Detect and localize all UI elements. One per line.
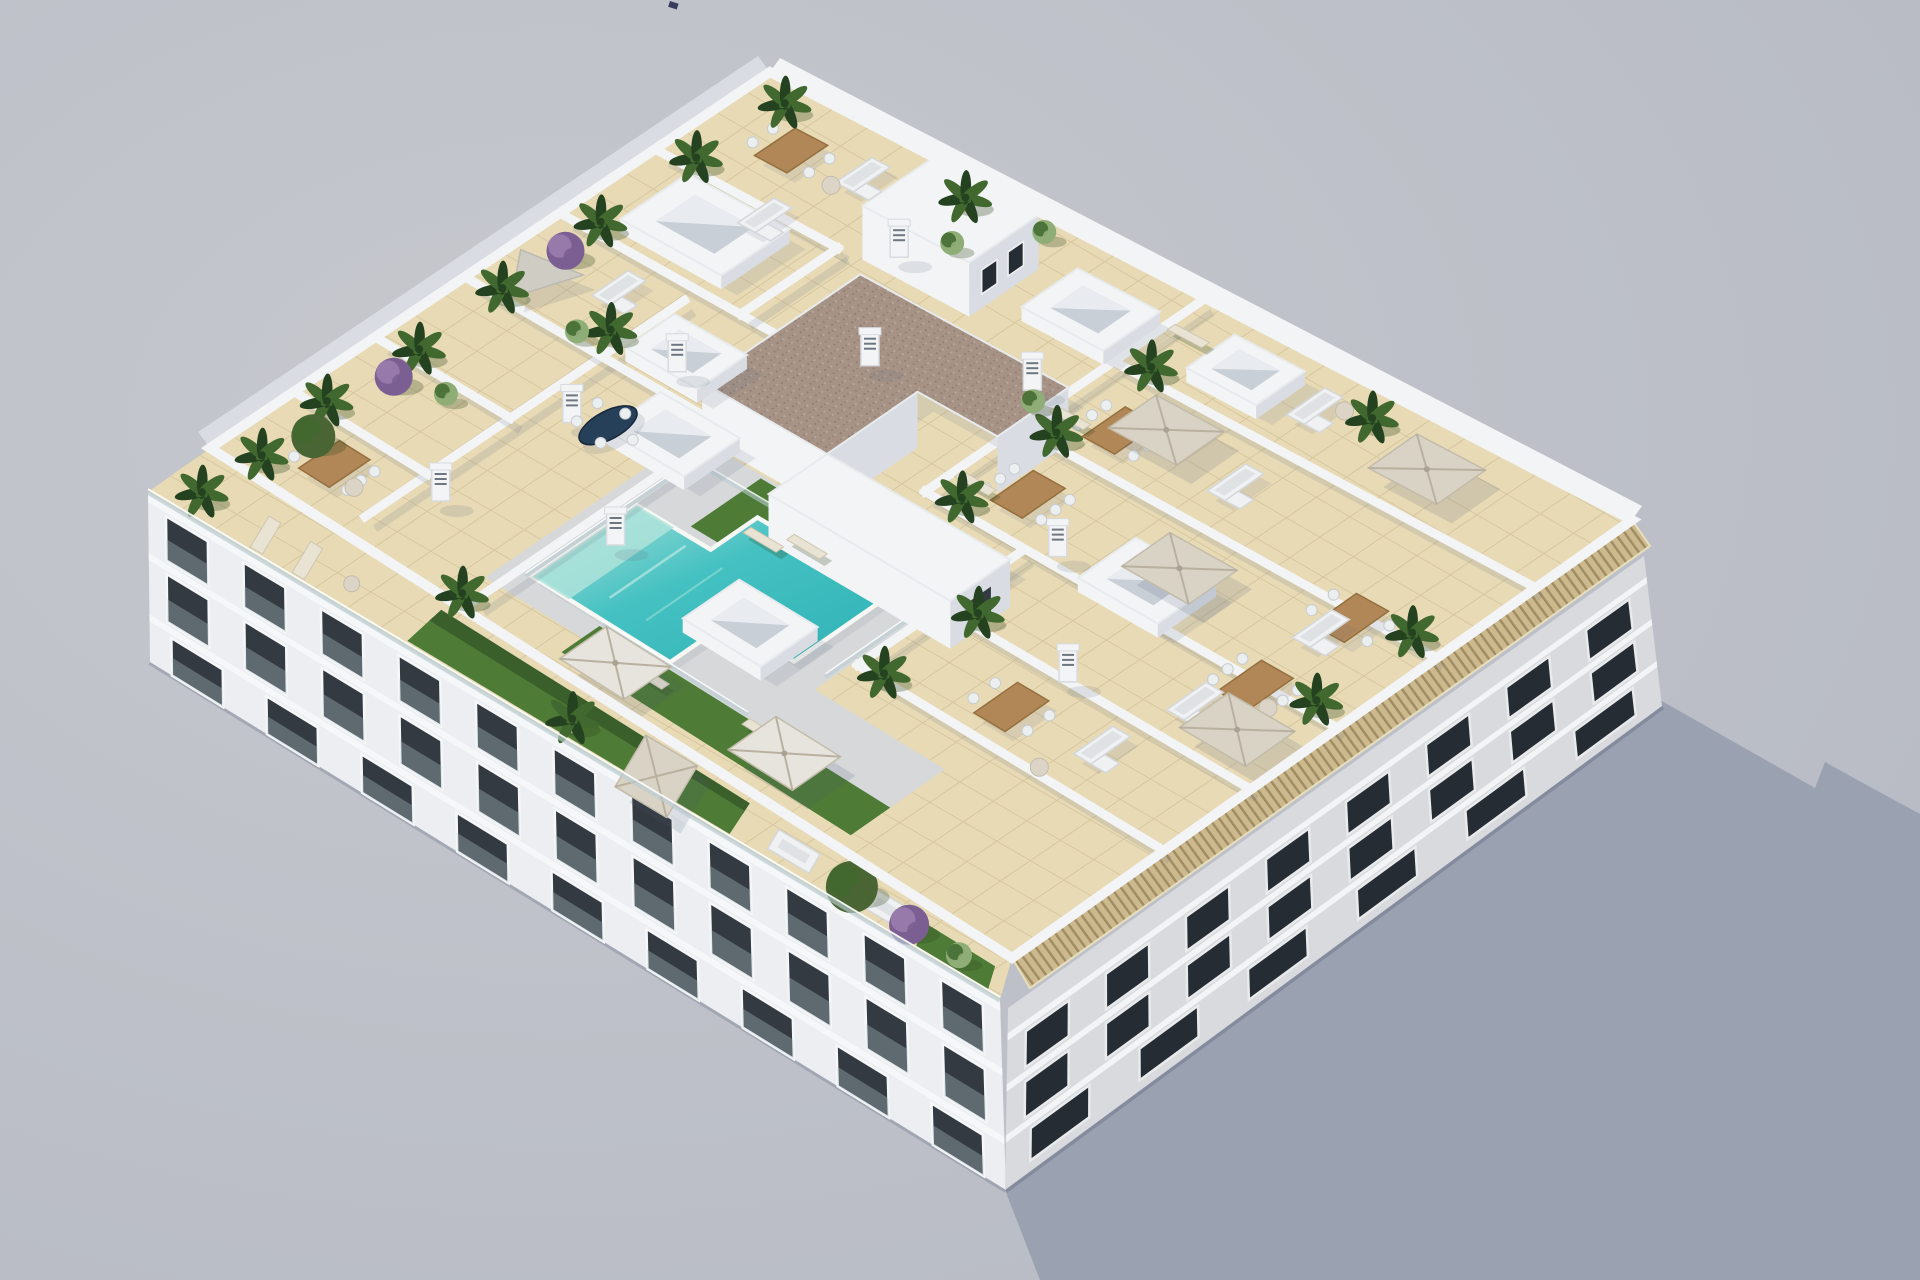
dining-chair bbox=[1050, 504, 1061, 515]
chimney-cap bbox=[561, 384, 583, 391]
dining-chair bbox=[1009, 463, 1020, 474]
chimney-cap bbox=[1047, 519, 1069, 526]
palm-crown bbox=[1368, 414, 1376, 422]
palm-crown bbox=[597, 218, 605, 226]
rooftop-aerial-render bbox=[0, 0, 1920, 1280]
olive-tree-foliage bbox=[849, 883, 872, 906]
parasol-hub bbox=[1176, 565, 1182, 571]
dining-chair bbox=[289, 451, 300, 462]
palm-crown bbox=[323, 397, 331, 405]
bougainvillea-bush-foliage bbox=[392, 374, 409, 391]
palm-crown bbox=[1147, 363, 1155, 371]
chimney-shadow bbox=[615, 549, 649, 561]
parasol-hub bbox=[612, 660, 618, 666]
palm-crown bbox=[974, 609, 982, 617]
palm-crown bbox=[458, 589, 466, 597]
side-table bbox=[344, 576, 360, 592]
dining-chair bbox=[1222, 664, 1233, 675]
palm-crown bbox=[415, 345, 423, 353]
dining-chair bbox=[627, 434, 638, 445]
dining-chair bbox=[620, 408, 631, 419]
chimney-shadow bbox=[1067, 686, 1101, 698]
chimney-shadow bbox=[869, 370, 903, 382]
dining-chair bbox=[824, 153, 835, 164]
dining-chair bbox=[1036, 514, 1047, 525]
palm-crown bbox=[568, 715, 576, 723]
dining-chair bbox=[1208, 674, 1219, 685]
parasol-hub bbox=[1234, 727, 1240, 733]
dining-chair bbox=[595, 437, 606, 448]
bougainvillea-bush-foliage bbox=[564, 248, 581, 265]
chimney-shadow bbox=[898, 261, 932, 273]
green-bush-foliage bbox=[951, 241, 962, 252]
palm-crown bbox=[781, 99, 789, 107]
palm-crown bbox=[607, 325, 615, 333]
parasol-hub bbox=[1163, 427, 1169, 433]
architectural-render-figure bbox=[0, 0, 1920, 1280]
chimney-cap bbox=[605, 507, 627, 514]
palm-crown bbox=[880, 669, 888, 677]
chimney-cap bbox=[430, 463, 452, 470]
green-bush-foliage bbox=[958, 953, 970, 965]
green-bush-foliage bbox=[1032, 399, 1043, 410]
dining-chair bbox=[1044, 710, 1055, 721]
dining-chair bbox=[995, 473, 1006, 484]
olive-tree-foliage bbox=[311, 433, 331, 453]
chimney-shadow bbox=[440, 505, 474, 517]
dining-chair bbox=[747, 137, 758, 148]
parasol-hub bbox=[1424, 466, 1430, 472]
dining-chair bbox=[1237, 653, 1248, 664]
dining-chair bbox=[1064, 494, 1075, 505]
dining-chair bbox=[1306, 605, 1317, 616]
palm-crown bbox=[498, 284, 506, 292]
palm-crown bbox=[258, 451, 266, 459]
chimney-cap bbox=[1021, 352, 1043, 359]
green-bush-foliage bbox=[1043, 230, 1054, 241]
palm-crown bbox=[1312, 696, 1320, 704]
dining-chair bbox=[990, 678, 1001, 689]
palm-crown bbox=[198, 488, 206, 496]
palm-crown bbox=[692, 154, 700, 162]
chimney-shadow bbox=[1057, 561, 1091, 573]
palm-crown bbox=[1052, 428, 1060, 436]
dining-chair bbox=[804, 167, 815, 178]
round-side-table bbox=[822, 176, 840, 194]
bougainvillea-bush-foliage bbox=[907, 922, 925, 940]
palm-crown bbox=[958, 494, 966, 502]
chimney-cap bbox=[888, 219, 910, 226]
chimney-cap bbox=[666, 334, 688, 341]
dining-chair bbox=[1277, 695, 1288, 706]
chimney-shadow bbox=[676, 376, 710, 388]
dining-chair bbox=[1022, 725, 1033, 736]
dining-chair bbox=[1328, 589, 1339, 600]
round-side-table bbox=[345, 478, 363, 496]
palm-crown bbox=[1408, 629, 1416, 637]
round-side-table bbox=[1030, 758, 1048, 776]
palm-crown bbox=[961, 194, 969, 202]
dining-chair bbox=[1362, 636, 1373, 647]
dining-chair bbox=[968, 693, 979, 704]
dining-chair bbox=[1087, 410, 1098, 421]
dining-chair bbox=[1101, 400, 1112, 411]
chimney-cap bbox=[1057, 644, 1079, 651]
round-side-table bbox=[1336, 402, 1354, 420]
green-bush-foliage bbox=[445, 392, 456, 403]
green-bush-foliage bbox=[576, 330, 587, 341]
chimney-cap bbox=[859, 328, 881, 335]
dining-chair bbox=[592, 398, 603, 409]
dining-chair bbox=[571, 416, 582, 427]
dining-chair bbox=[369, 466, 380, 477]
parasol-hub bbox=[781, 750, 787, 756]
